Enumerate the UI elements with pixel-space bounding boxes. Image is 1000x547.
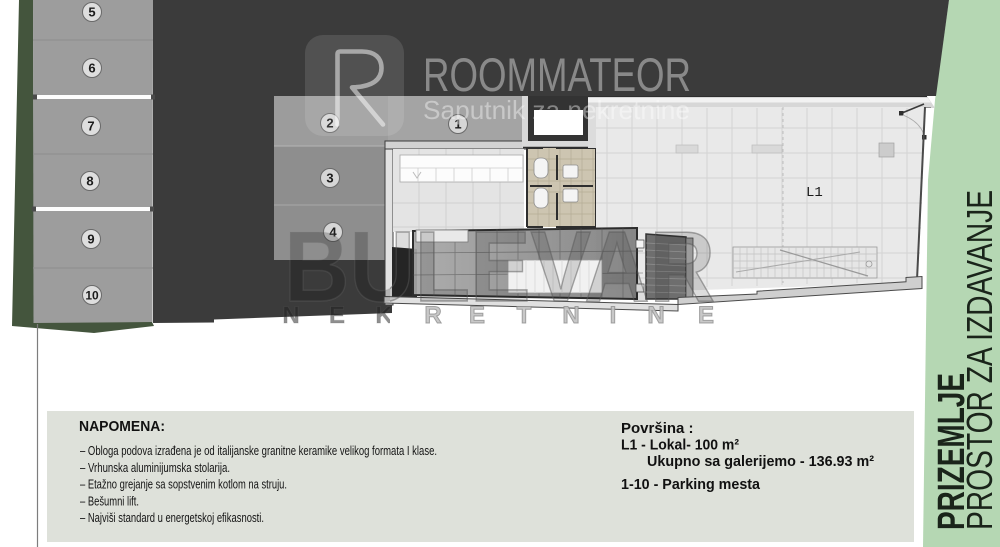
svg-text:E: E <box>329 302 345 329</box>
svg-text:Površina :: Površina : <box>621 420 694 437</box>
svg-text:7: 7 <box>87 119 94 134</box>
svg-text:10: 10 <box>85 289 99 303</box>
svg-text:3: 3 <box>326 171 333 186</box>
svg-text:ROOMMATEOR: ROOMMATEOR <box>423 48 691 101</box>
svg-text:1-10 - Parking mesta: 1-10 - Parking mesta <box>621 476 761 493</box>
svg-text:8: 8 <box>86 174 93 189</box>
svg-text:NAPOMENA:: NAPOMENA: <box>79 418 165 435</box>
svg-text:N: N <box>282 302 299 329</box>
svg-text:6: 6 <box>88 61 95 76</box>
svg-text:– Najviši standard u energetsk: – Najviši standard u energetskoj efikasn… <box>80 511 264 525</box>
svg-text:L1: L1 <box>806 185 823 201</box>
svg-text:Ukupno sa galerijemo - 136.93: Ukupno sa galerijemo - 136.93 m² <box>647 453 874 470</box>
svg-text:E: E <box>698 302 714 329</box>
svg-text:E: E <box>469 302 485 329</box>
svg-text:– Vrhunska aluminijumska stola: – Vrhunska aluminijumska stolarija. <box>80 461 230 475</box>
svg-text:N: N <box>647 302 664 329</box>
svg-text:– Bešumni lift.: – Bešumni lift. <box>80 494 139 508</box>
svg-text:– Obloga podova izrađena je od: – Obloga podova izrađena je od italijans… <box>80 444 437 458</box>
svg-text:Saputnik za nekretnine: Saputnik za nekretnine <box>423 95 690 125</box>
svg-text:5: 5 <box>88 5 95 20</box>
svg-text:R: R <box>424 302 441 329</box>
svg-text:N: N <box>562 302 579 329</box>
svg-text:L1 - Lokal- 100 m²: L1 - Lokal- 100 m² <box>621 437 739 454</box>
svg-text:– Etažno grejanje sa sopstveni: – Etažno grejanje sa sopstvenim kotlom n… <box>80 478 287 492</box>
svg-text:PROSTOR ZA IZDAVANJE: PROSTOR ZA IZDAVANJE <box>959 190 1000 530</box>
svg-text:T: T <box>517 302 532 329</box>
svg-text:9: 9 <box>87 232 94 247</box>
svg-text:I: I <box>610 302 617 329</box>
